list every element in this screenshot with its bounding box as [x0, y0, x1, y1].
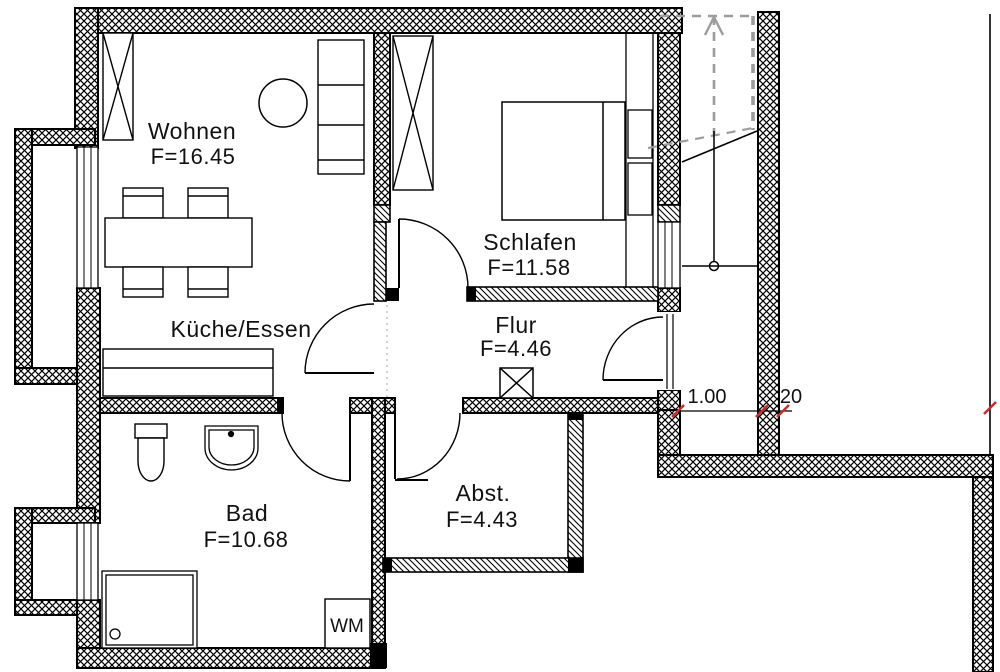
bay1-wall-left — [15, 129, 32, 384]
wall-schlafen-flur — [467, 287, 658, 301]
kitchen-counter — [103, 349, 273, 396]
area-bad: F=10.68 — [204, 527, 289, 552]
wall-right-block-small — [658, 205, 680, 222]
wall-bottom-right-horizontal — [658, 455, 993, 477]
wall-left-upper — [75, 8, 98, 148]
bed — [502, 102, 625, 220]
toilet — [135, 424, 167, 481]
sink — [205, 426, 258, 470]
label-flur: Flur — [495, 312, 537, 338]
shaft-symbol — [500, 368, 533, 398]
dimension-line: 1.00 20 — [672, 386, 996, 417]
floor-plan: 1.00 20 Wohnen F=16.45 Schlafen F=11.58 … — [0, 0, 1000, 672]
chair — [123, 188, 163, 218]
wall-right-block2 — [658, 390, 680, 410]
dining-set — [105, 188, 252, 297]
bay2-wall-left — [15, 508, 32, 615]
wall-kueche-flur — [374, 222, 386, 301]
wall-right-upper — [658, 33, 680, 205]
wardrobe-symbol-schlafen — [393, 36, 433, 190]
door-abst — [395, 413, 460, 480]
window-stairwell — [658, 222, 680, 288]
label-bad: Bad — [226, 500, 268, 526]
label-washing-machine: WM — [330, 616, 364, 637]
dimension-corridor-width: 1.00 — [688, 386, 727, 408]
wall-divider-block — [374, 205, 390, 222]
wall-flur-bottom — [463, 398, 658, 413]
chair — [188, 188, 228, 218]
area-schlafen: F=11.58 — [487, 255, 570, 280]
wall-bottom-right-vertical — [973, 477, 993, 672]
wall-bad-right — [372, 398, 385, 668]
label-schlafen: Schlafen — [483, 229, 577, 255]
window-wohnen — [77, 147, 98, 288]
door-schlafen — [399, 219, 468, 288]
wall-abst-right — [568, 413, 583, 572]
wall-right-block1 — [658, 288, 680, 312]
window-bad — [77, 523, 98, 600]
area-flur: F=4.46 — [480, 336, 552, 361]
label-wohnen: Wohnen — [148, 118, 236, 144]
area-abst: F=4.43 — [446, 507, 518, 532]
door-bad — [282, 413, 350, 481]
chair — [188, 267, 228, 297]
dimension-wall-thickness: 20 — [780, 386, 802, 408]
wardrobe-symbol-wohnen — [103, 33, 133, 140]
wall-bottom-bad — [77, 648, 385, 668]
door-kueche — [305, 304, 374, 373]
chair — [123, 267, 163, 297]
nightstand — [628, 110, 652, 158]
wall-top — [75, 8, 682, 33]
wall-stairwell-right — [758, 12, 779, 477]
label-kueche: Küche/Essen — [170, 316, 311, 342]
dining-table — [105, 218, 252, 267]
floor-plan-drawing: 1.00 20 Wohnen F=16.45 Schlafen F=11.58 … — [0, 0, 1000, 672]
shelf-wohnen — [318, 40, 364, 174]
wall-wohnen-schlafen — [374, 33, 390, 205]
wall-left-middle — [77, 288, 100, 523]
wall-bad-top — [100, 398, 283, 413]
shower — [102, 571, 197, 648]
label-abst: Abst. — [456, 480, 511, 506]
closet-strip — [626, 33, 653, 288]
area-wohnen: F=16.45 — [151, 144, 236, 169]
wall-abst-bottom — [383, 558, 583, 572]
stair-lower-flight — [682, 131, 757, 271]
wall-right-lower — [658, 410, 680, 455]
round-table — [259, 79, 307, 127]
door-entrance — [603, 312, 681, 390]
nightstand — [628, 163, 652, 215]
